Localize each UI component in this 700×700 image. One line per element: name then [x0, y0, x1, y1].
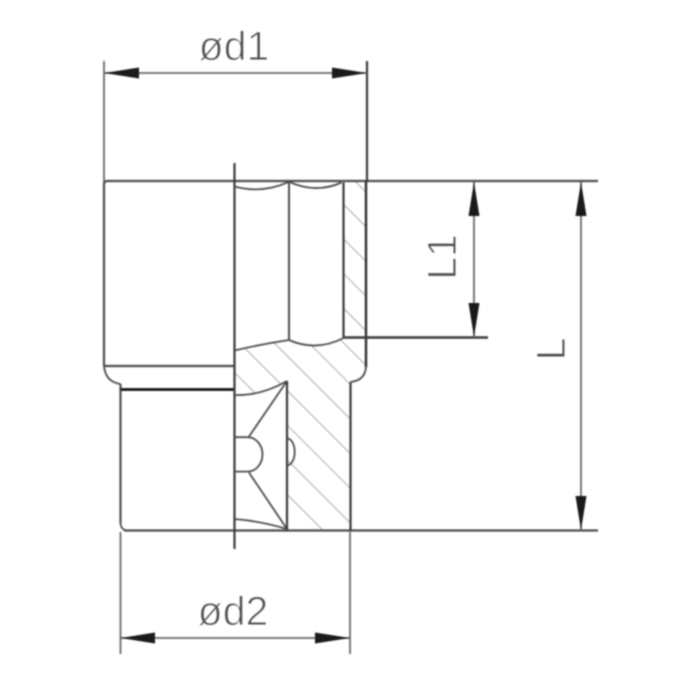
svg-text:ød2: ød2 [198, 588, 269, 634]
svg-text:L1: L1 [419, 234, 465, 280]
svg-text:ød1: ød1 [199, 23, 270, 69]
svg-text:L: L [528, 338, 574, 361]
